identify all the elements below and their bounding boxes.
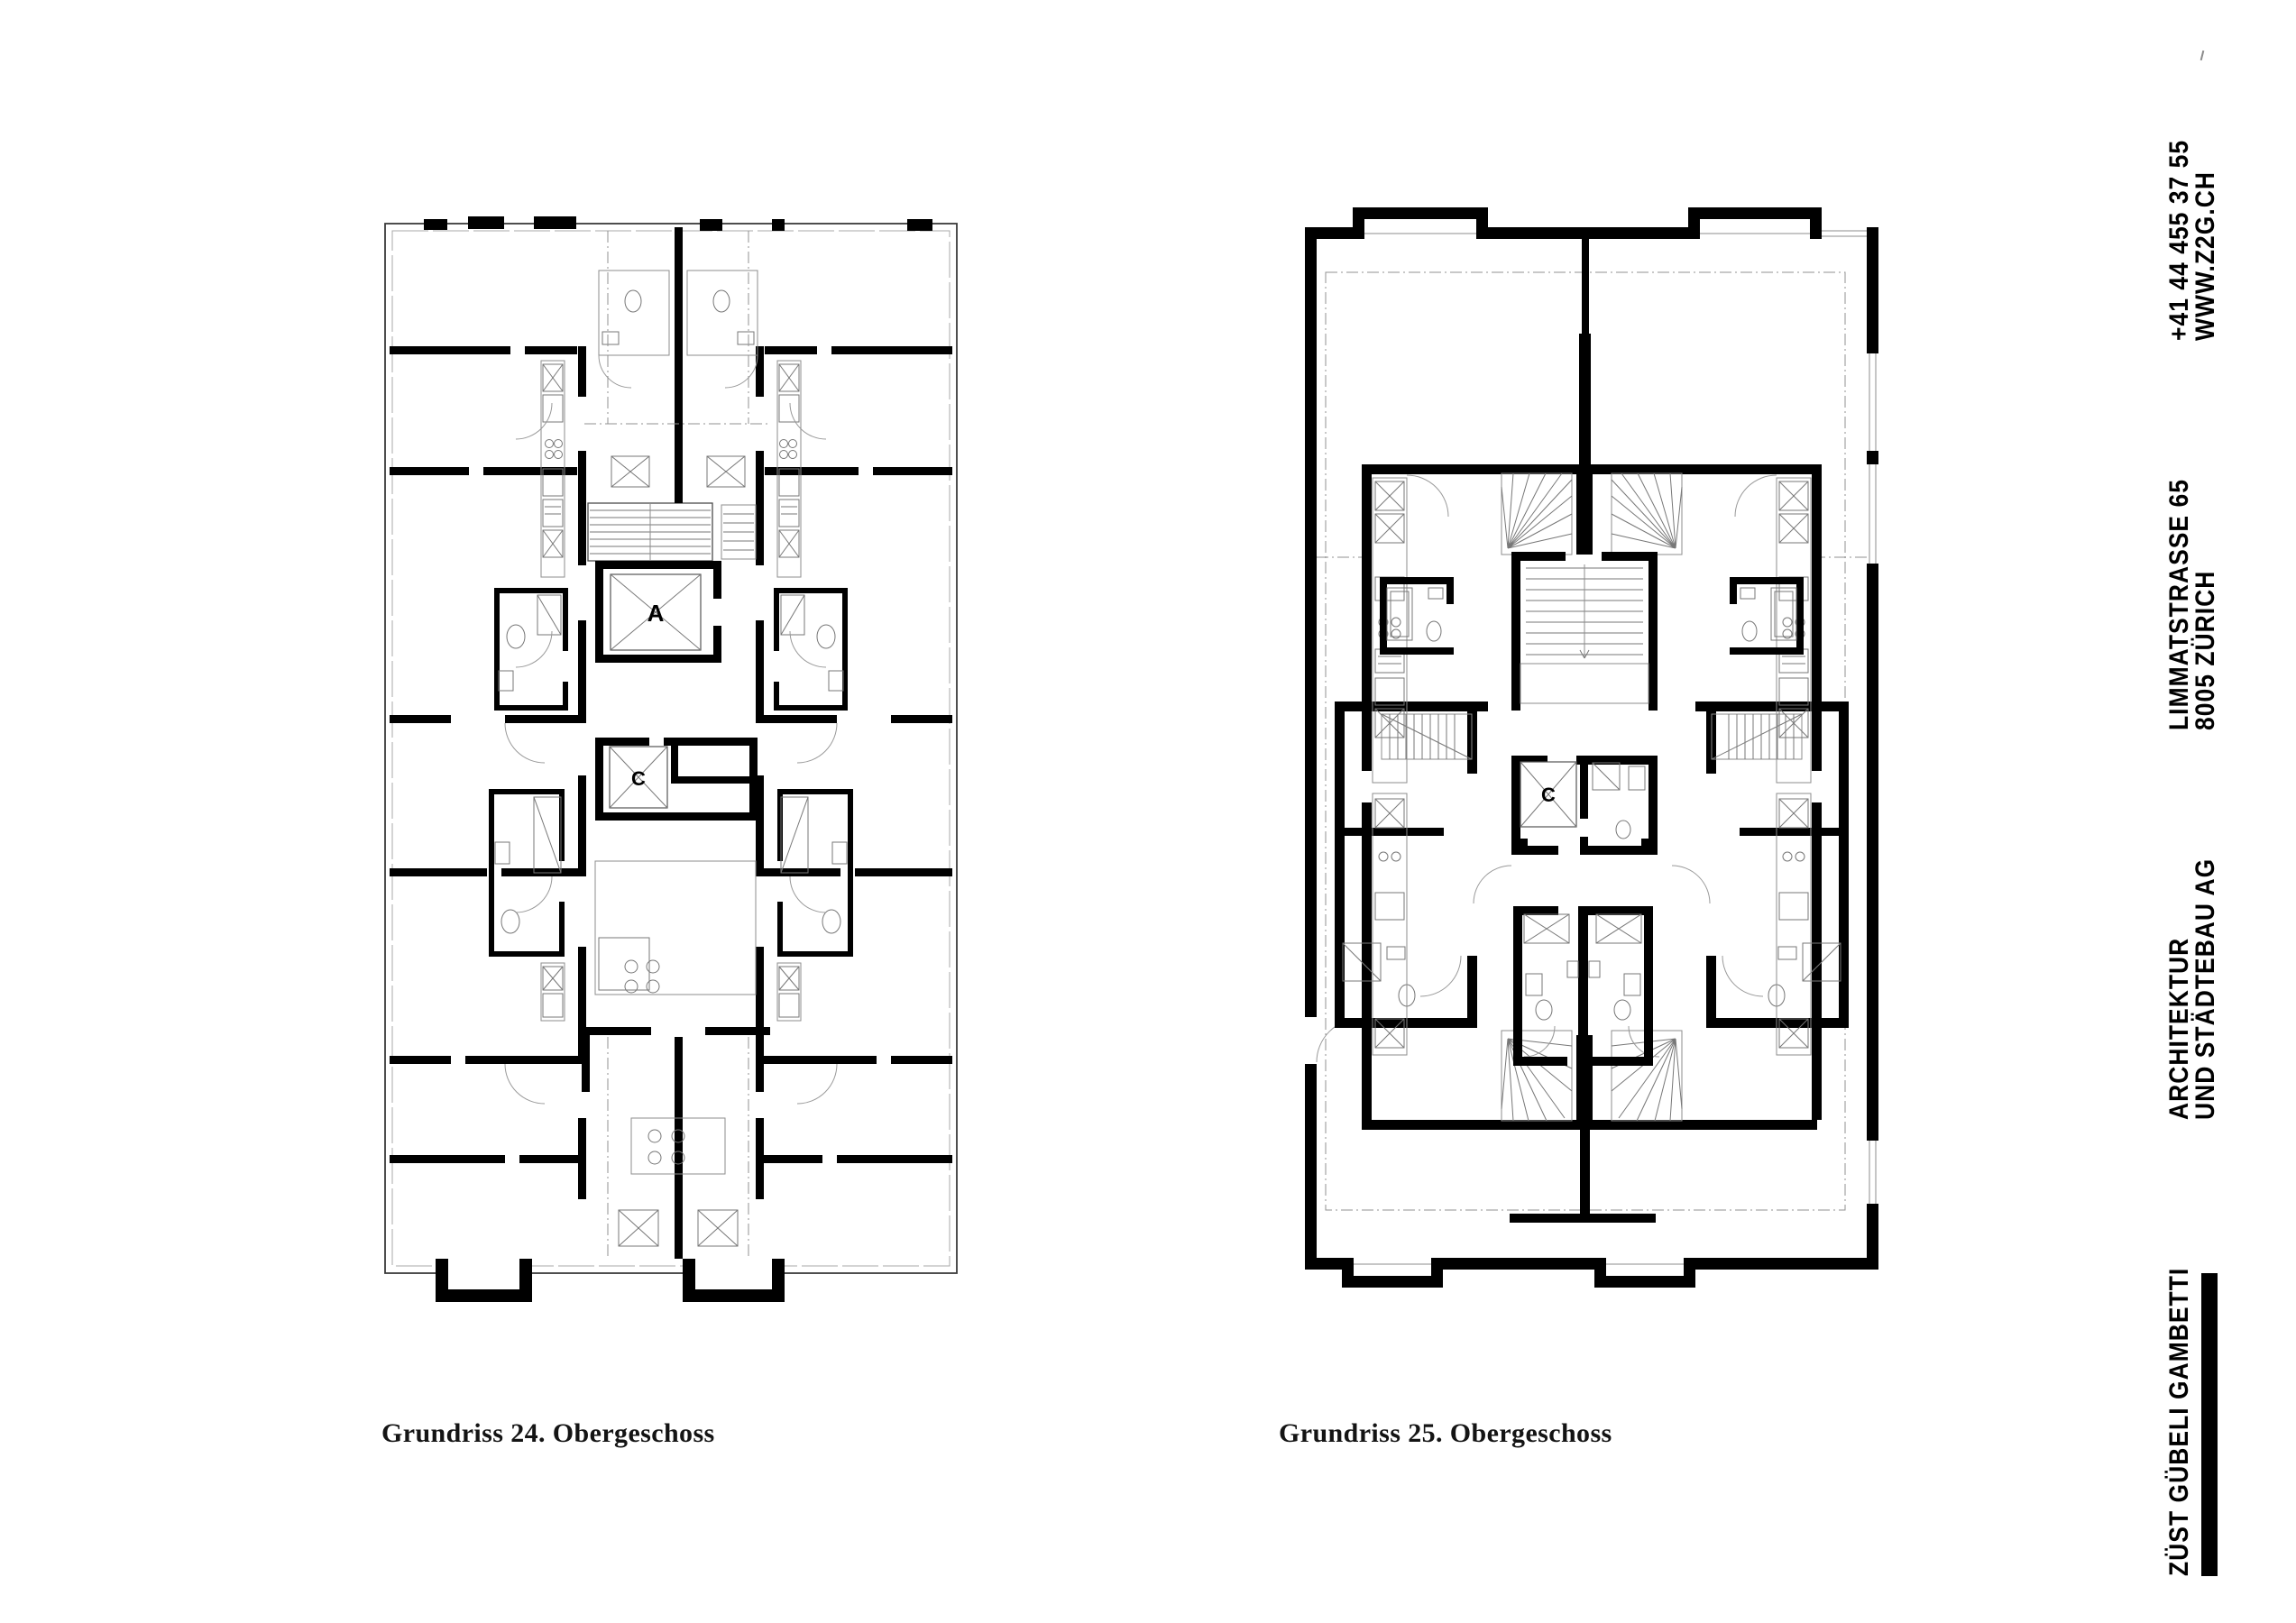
caption-plan-24: Grundriss 24. Obergeschoss [381,1418,715,1449]
logo-bar [2201,1273,2218,1576]
firm-name: ZÜST GÜBELI GAMBETTI [2164,1268,2194,1576]
letterhead-firm-type: ARCHITEKTUR UND STÄDTEBAU AG [2166,858,2218,1120]
floor-plan-24: A C [385,216,957,1302]
letterhead-address: LIMMATSTRASSE 65 8005 ZÜRICH [2166,479,2218,730]
city: 8005 ZÜRICH [2190,571,2220,730]
floor-plans-canvas: A C [0,0,2296,1623]
caption-plan-25: Grundriss 25. Obergeschoss [1279,1418,1612,1449]
elevator-c-label: C [1541,784,1556,806]
elevator-a-label: A [647,600,665,627]
firm-type-line2: UND STÄDTEBAU AG [2190,858,2220,1120]
letterhead-contact: +41 44 455 37 55 WWW.Z2G.CH [2166,140,2218,341]
drawing-sheet: A C [0,0,2296,1623]
floor-plan-25: C [1305,207,1878,1288]
letterhead-firm-name: ZÜST GÜBELI GAMBETTI [2166,1268,2192,1576]
elevator-c-label: C [631,767,646,790]
website: WWW.Z2G.CH [2190,171,2220,341]
